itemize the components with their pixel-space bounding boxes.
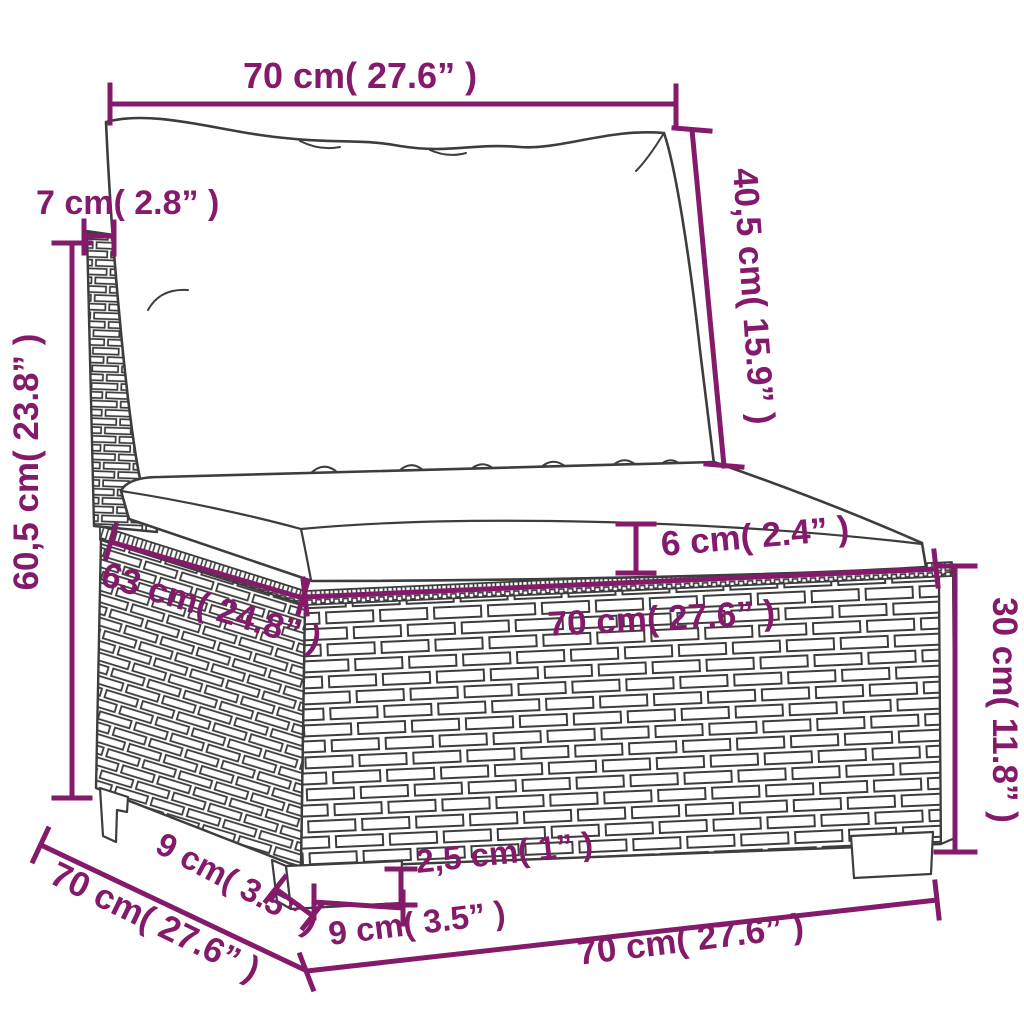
label-back-panel-thickness: 7 cm( 2.8” ) bbox=[36, 184, 219, 222]
label-overall-height: 60,5 cm( 23.8” ) bbox=[7, 334, 46, 591]
back-cushion bbox=[106, 118, 714, 479]
label-base-height: 30 cm( 11.8” ) bbox=[985, 597, 1024, 823]
sofa-dimension-drawing: 70 cm( 27.6” ) 7 cm( 2.8” ) 40,5 cm( 15.… bbox=[0, 0, 1024, 1024]
back-left-leg bbox=[100, 788, 128, 842]
label-overall-width: 70 cm( 27.6” ) bbox=[575, 906, 806, 972]
front-right-leg bbox=[851, 832, 933, 878]
product-dimension-diagram: 70 cm( 27.6” ) 7 cm( 2.8” ) 40,5 cm( 15.… bbox=[0, 0, 1024, 1024]
dim-line-overall-height bbox=[54, 243, 90, 798]
label-back-cushion-height: 40,5 cm( 15.9” ) bbox=[725, 167, 782, 426]
label-back-cushion-width: 70 cm( 27.6” ) bbox=[243, 55, 477, 96]
